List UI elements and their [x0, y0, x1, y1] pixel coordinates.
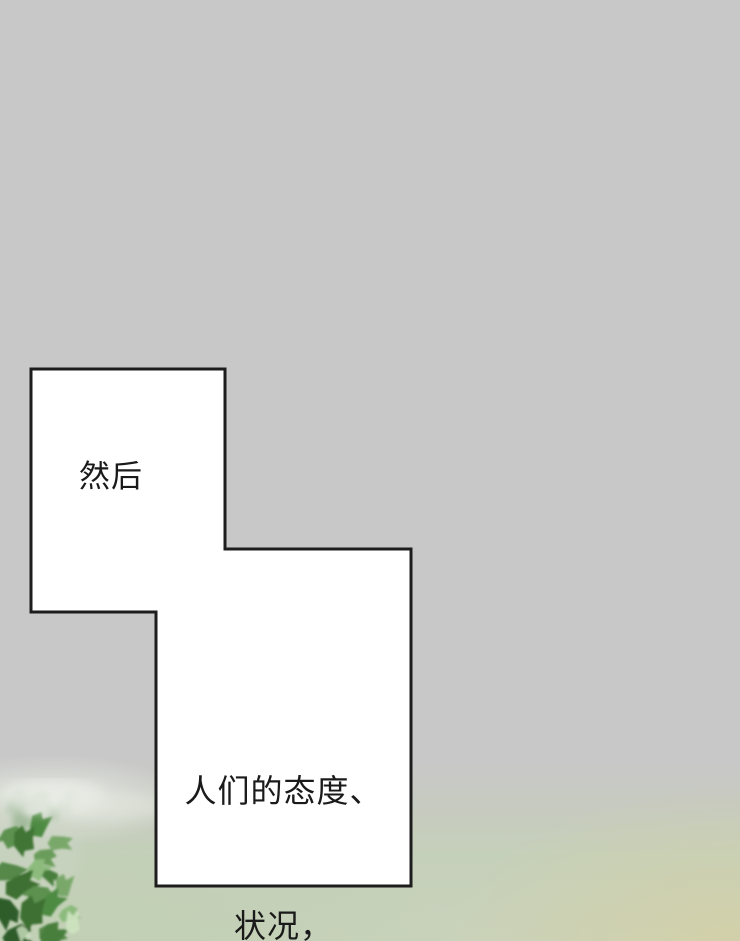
- comic-page: 然后 人们的态度、 状况，: [0, 0, 740, 941]
- speech-bubble-bottom-line-2: 状况，: [156, 904, 411, 941]
- speech-bubble-bottom-line-1: 人们的态度、: [156, 769, 411, 814]
- speech-bubble-top-text: 然后: [31, 459, 191, 495]
- speech-bubble-bottom-text: 人们的态度、 状况，: [156, 679, 411, 941]
